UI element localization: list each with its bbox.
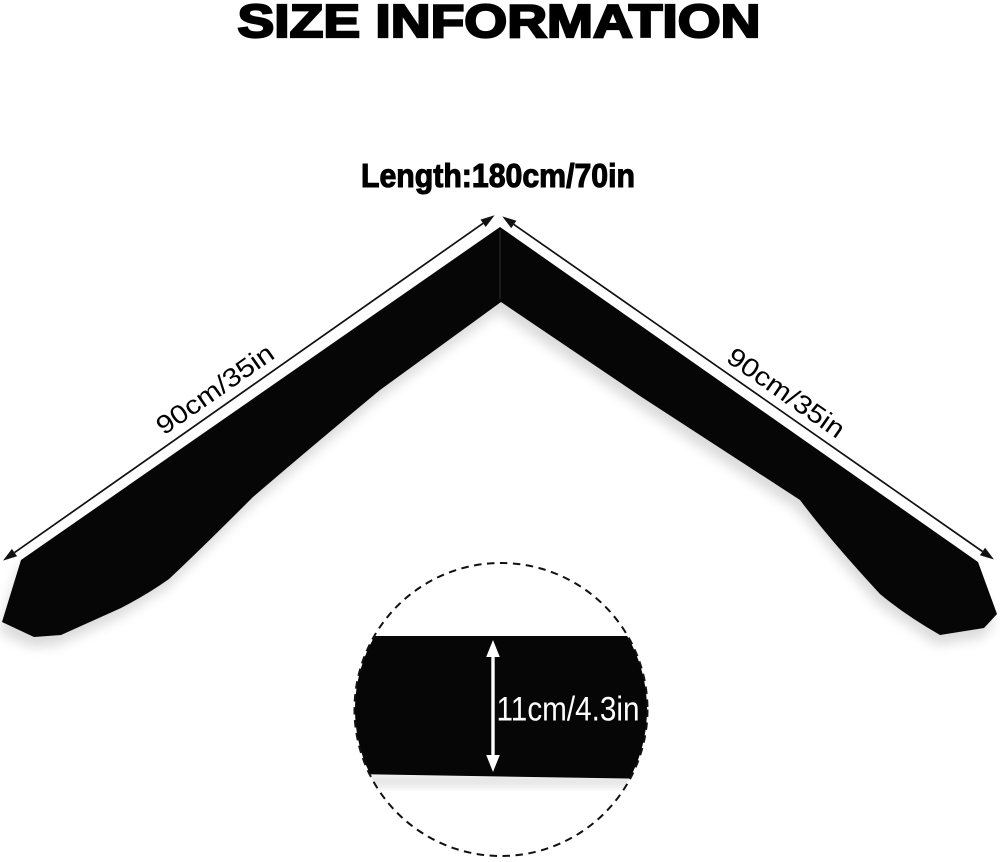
svg-text:SIZE INFORMATION: SIZE INFORMATION bbox=[238, 0, 761, 47]
svg-text:11cm/4.3in: 11cm/4.3in bbox=[497, 691, 640, 729]
svg-text:Length:180cm/70in: Length:180cm/70in bbox=[361, 157, 635, 194]
